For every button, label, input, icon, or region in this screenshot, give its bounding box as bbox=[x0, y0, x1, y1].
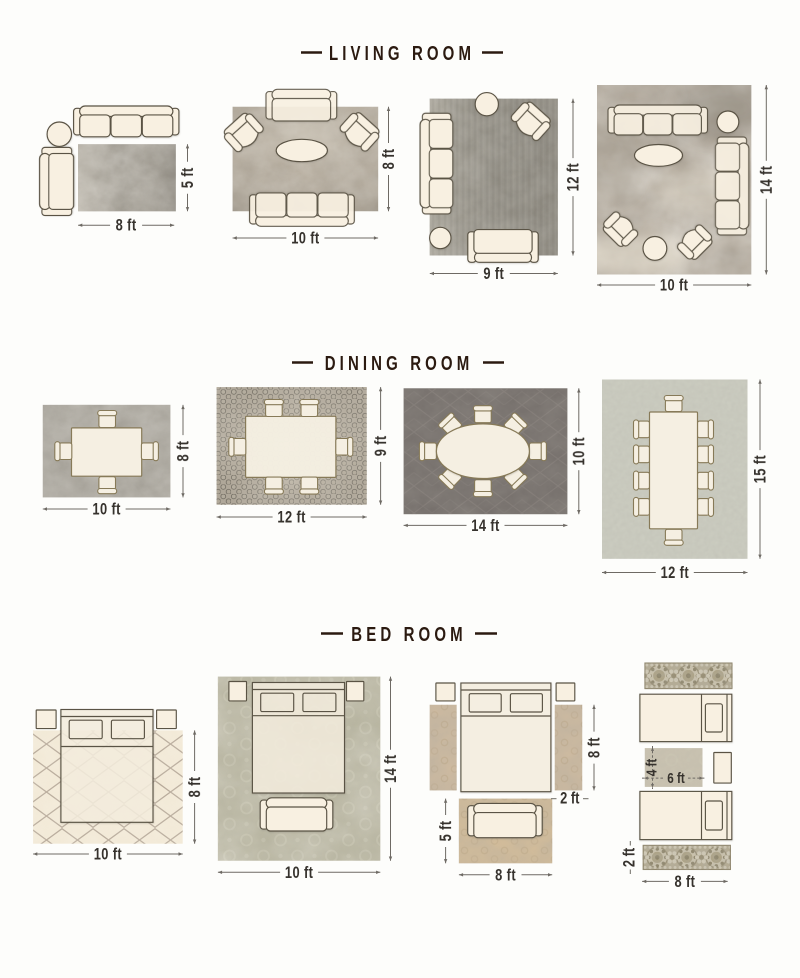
svg-text:LIVING ROOM: LIVING ROOM bbox=[329, 42, 475, 65]
svg-text:DINING ROOM: DINING ROOM bbox=[325, 352, 474, 375]
svg-text:10 ft: 10 ft bbox=[285, 864, 313, 882]
svg-text:14 ft: 14 ft bbox=[471, 518, 499, 536]
svg-text:8 ft: 8 ft bbox=[187, 777, 205, 798]
svg-text:BED ROOM: BED ROOM bbox=[351, 623, 466, 646]
svg-text:12 ft: 12 ft bbox=[565, 163, 583, 191]
svg-text:2 ft: 2 ft bbox=[621, 848, 639, 867]
svg-text:8 ft: 8 ft bbox=[586, 737, 604, 758]
svg-text:4 ft: 4 ft bbox=[643, 758, 660, 776]
svg-text:12 ft: 12 ft bbox=[277, 509, 305, 527]
svg-text:5 ft: 5 ft bbox=[180, 167, 198, 188]
svg-text:6 ft: 6 ft bbox=[667, 770, 685, 787]
svg-text:8 ft: 8 ft bbox=[674, 874, 695, 892]
svg-text:15 ft: 15 ft bbox=[752, 455, 770, 483]
svg-text:8 ft: 8 ft bbox=[116, 217, 137, 235]
svg-text:8 ft: 8 ft bbox=[175, 441, 193, 462]
svg-text:10 ft: 10 ft bbox=[291, 230, 319, 248]
svg-text:9 ft: 9 ft bbox=[373, 435, 391, 456]
svg-text:9 ft: 9 ft bbox=[483, 266, 504, 284]
svg-text:12 ft: 12 ft bbox=[661, 565, 689, 583]
svg-text:8 ft: 8 ft bbox=[495, 867, 516, 885]
svg-text:10 ft: 10 ft bbox=[571, 437, 589, 465]
svg-text:14 ft: 14 ft bbox=[758, 166, 776, 194]
svg-text:10 ft: 10 ft bbox=[94, 846, 122, 864]
svg-text:8 ft: 8 ft bbox=[381, 149, 399, 170]
svg-text:10 ft: 10 ft bbox=[92, 501, 120, 519]
svg-text:2 ft: 2 ft bbox=[560, 790, 579, 808]
svg-text:14 ft: 14 ft bbox=[383, 755, 401, 783]
svg-text:5 ft: 5 ft bbox=[438, 821, 456, 842]
svg-text:10 ft: 10 ft bbox=[660, 277, 688, 295]
